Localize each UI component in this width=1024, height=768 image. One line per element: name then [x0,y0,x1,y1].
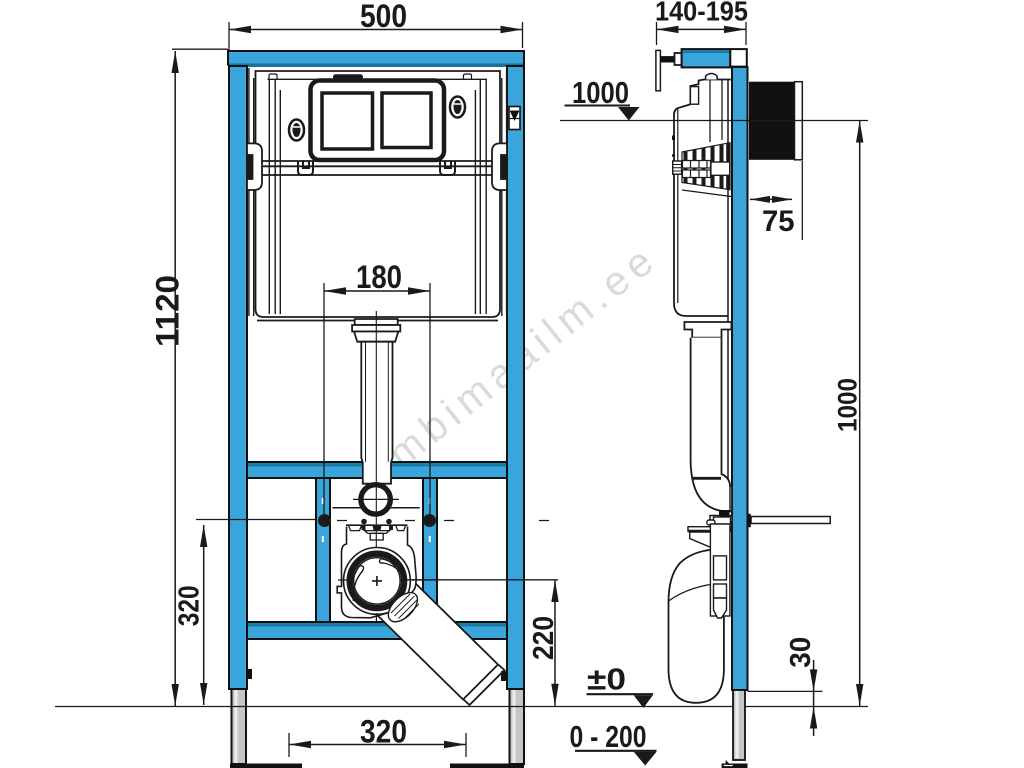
svg-text:1000: 1000 [833,378,863,432]
svg-text:320: 320 [360,714,407,750]
svg-text:220: 220 [528,616,560,660]
svg-text:±0: ±0 [587,662,626,697]
svg-text:500: 500 [360,0,407,34]
svg-text:30: 30 [785,637,817,668]
svg-text:75: 75 [762,205,795,238]
svg-text:140-195: 140-195 [655,0,748,27]
svg-text:0 - 200: 0 - 200 [570,719,647,754]
svg-text:1120: 1120 [150,275,186,347]
svg-text:180: 180 [356,259,402,295]
svg-text:320: 320 [174,585,206,626]
